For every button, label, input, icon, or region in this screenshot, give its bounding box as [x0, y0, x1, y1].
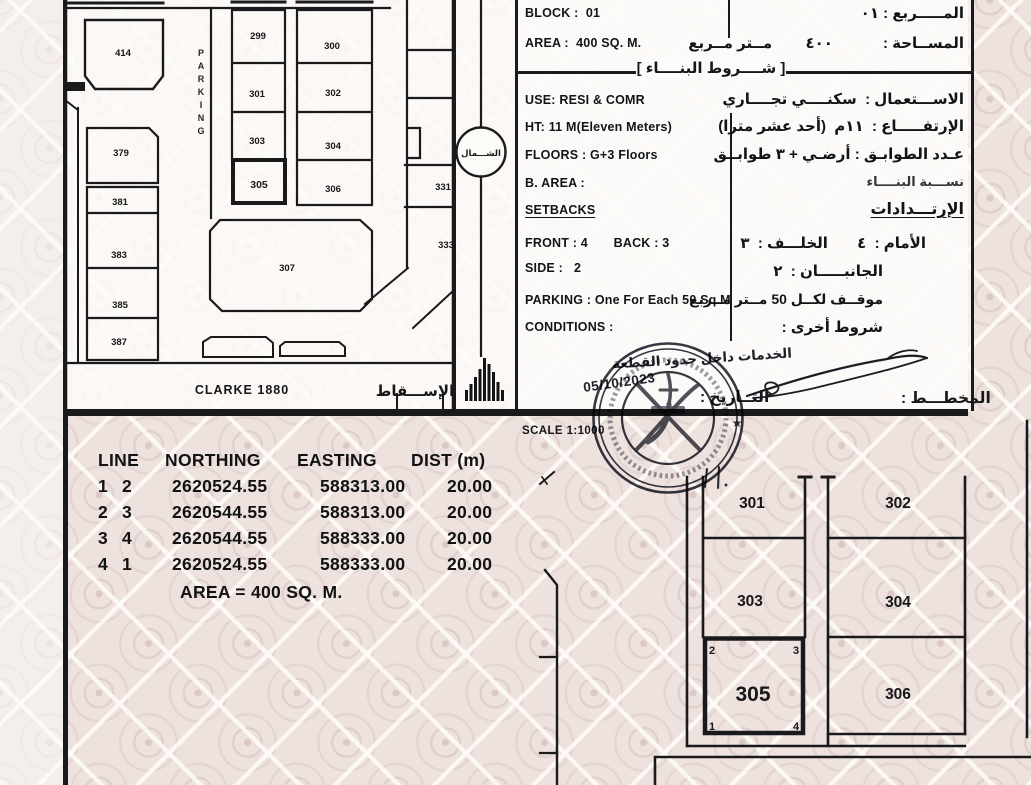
plot-label-307: 307: [279, 263, 295, 274]
side-value-en: SIDE : 2: [525, 261, 581, 275]
built-area-label-en: B. AREA :: [525, 176, 585, 190]
front-back-value-en: FRONT : 4 BACK : 3: [525, 236, 669, 250]
plot-label-302: 302: [325, 88, 341, 99]
built-area-label-ar: نســـبة البنــــاء: [867, 174, 965, 190]
block-value-ar: المـــــربع : ٠١: [861, 4, 964, 22]
conditions-label-ar: شروط أخرى :: [782, 318, 883, 336]
plot-label-303: 303: [249, 136, 265, 147]
plot-label-306: 306: [885, 686, 911, 703]
plot-label-300: 300: [324, 41, 340, 52]
area-value-en: AREA : 400 SQ. M.: [525, 36, 641, 50]
plot-label-303: 303: [737, 593, 763, 610]
north-label-ar: الشـــمال: [461, 148, 501, 158]
building-conditions-title-text: شــــروط البنــــاء: [646, 60, 777, 77]
use-value-en: USE: RESI & COMR: [525, 93, 645, 107]
height-value-ar: الإرتفـــــاع : ١١م (أحد عشر مترا): [718, 117, 964, 135]
corner-1: 1: [709, 721, 715, 733]
corner-2: 2: [709, 645, 715, 657]
bracket-right: ]: [637, 60, 642, 77]
height-value-en: HT: 11 M(Eleven Meters): [525, 120, 672, 134]
floors-value-en: FLOORS : G+3 Floors: [525, 148, 658, 162]
front-back-value-ar: الأمام : ٤ الخلـــف : ٣: [740, 234, 926, 252]
block-value-en: BLOCK : 01: [525, 6, 600, 20]
plot-label-304: 304: [885, 594, 911, 611]
plot-label-331: 331: [435, 182, 452, 193]
panel-divider-top: [728, 0, 730, 38]
plot-label-301: 301: [249, 89, 266, 100]
plot-label-306: 306: [325, 184, 341, 195]
area-value-ar: المســاحة : ٤٠٠ مــتر مــربع: [688, 34, 964, 52]
conditions-label-en: CONDITIONS :: [525, 320, 614, 334]
use-value-ar: الاســـتعمال : سكنــــي تجــــاري: [722, 90, 964, 108]
plot-label-299: 299: [250, 31, 266, 42]
projection-label-en: CLARKE 1880: [195, 383, 289, 397]
bottom-map-plot-labels: 301 302 303 304 305 306: [735, 495, 911, 706]
plot-label-383: 383: [111, 250, 127, 261]
plot-label-381: 381: [112, 197, 129, 208]
bottom-plot-map: 301 302 303 304 305 306 2 3 1 4: [63, 415, 1031, 785]
plot-label-333: 333: [438, 240, 454, 251]
plot-label-387: 387: [111, 337, 127, 348]
building-conditions-title: [ شــــروط البنــــاء ]: [636, 59, 786, 77]
projection-label-ar: الإســـقاط: [376, 383, 454, 400]
official-ministry-stamp: ★: [584, 335, 752, 503]
plot-label-305: 305: [250, 179, 268, 191]
left-margin: [0, 0, 63, 785]
corner-3: 3: [793, 645, 799, 657]
top-location-map: 414 299 301 303 305 300 302 304 306 379 …: [63, 0, 456, 411]
oman-emblem-icon: [636, 374, 700, 450]
floors-value-ar: عـدد الطوابـق : أرضـي + ٣ طوابــق: [713, 145, 964, 163]
signature-scribble: [737, 342, 937, 406]
plot-label-304: 304: [325, 141, 342, 152]
scale-bars-icon: [465, 358, 504, 401]
plot-label-379: 379: [113, 148, 129, 159]
side-value-ar: الجانبـــــان : ٢: [773, 262, 883, 280]
plot-label-302: 302: [885, 495, 911, 512]
north-strip: الشـــمال: [456, 0, 515, 411]
plot-label-414: 414: [115, 48, 132, 59]
parking-value-ar: موقــف لكــل 50 مــتر مــربع: [689, 291, 883, 308]
scanned-krooki-plot-certificate: { "misc": { "scale_label": "SCALE 1:1000…: [0, 0, 1031, 785]
setbacks-heading-en: SETBACKS: [525, 203, 595, 217]
stamp-star: ★: [732, 416, 743, 430]
setbacks-heading-ar: الإرتـــدادات: [870, 199, 964, 219]
plot-label-305: 305: [735, 683, 770, 706]
plot-label-385: 385: [112, 300, 129, 311]
bracket-left: [: [780, 60, 785, 77]
corner-4: 4: [793, 721, 800, 733]
parking-area-label: PARKING: [190, 48, 206, 148]
